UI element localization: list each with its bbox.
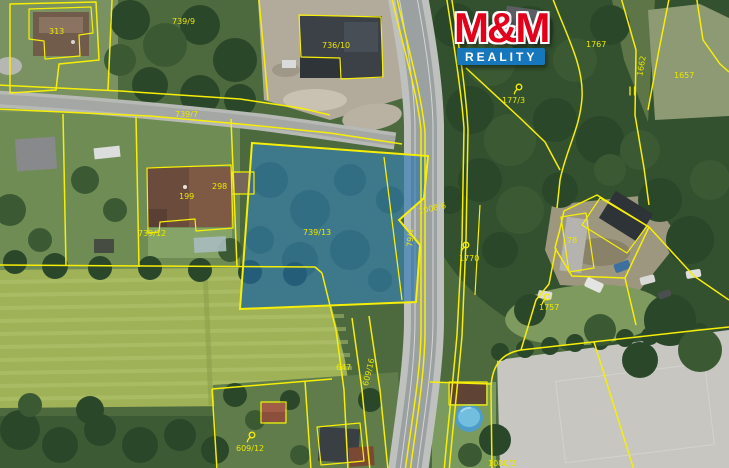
parcel-label-647: 647 (336, 363, 351, 372)
parcel-label-1657: 1657 (674, 71, 694, 80)
parcel-label-298: 298 (212, 182, 227, 191)
parcel-label-739-13: 739/13 (303, 228, 331, 237)
parcel-label-177-3: 177/3 (502, 96, 525, 105)
aerial-map-screenshot: 313 739/9 736/10 739/7 298 199 739/12 73… (0, 0, 729, 468)
parcel-label-609-12: 609/12 (236, 444, 264, 453)
parcel-label-736-10: 736/10 (322, 41, 350, 50)
parcel-label-1767: 1767 (586, 40, 606, 49)
parcel-label-78: 78 (567, 236, 577, 245)
parcel-label-199: 199 (179, 192, 194, 201)
parcel-label-313: 313 (49, 27, 64, 36)
aerial-map-canvas: 313 739/9 736/10 739/7 298 199 739/12 73… (0, 0, 729, 468)
parcel-label-1757: 1757 (539, 303, 559, 312)
parcel-label-79-4: 79/4 (405, 229, 416, 248)
parcel-label-1080-2: 1080/2 (488, 459, 516, 468)
parcel-label-739-9: 739/9 (172, 17, 195, 26)
parcel-label-1770: 1770 (459, 254, 479, 263)
parcel-label-739-7: 739/7 (175, 110, 198, 119)
parcel-label-739-12: 739/12 (138, 229, 166, 238)
